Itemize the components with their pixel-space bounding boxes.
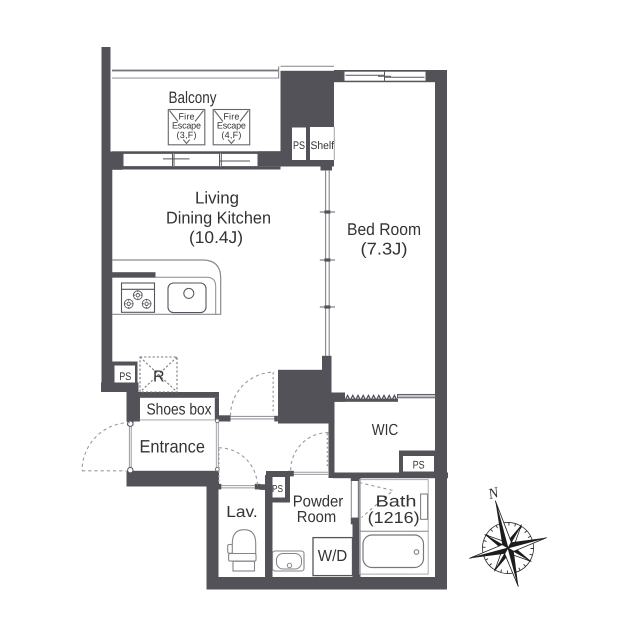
svg-text:Bed Room: Bed Room: [347, 220, 421, 239]
svg-text:(4,F): (4,F): [221, 130, 241, 140]
svg-text:R: R: [153, 369, 165, 386]
svg-text:Lav.: Lav.: [226, 504, 258, 521]
svg-text:Shelf: Shelf: [311, 140, 335, 152]
svg-text:(1216): (1216): [368, 510, 420, 527]
svg-text:(7.3J): (7.3J): [361, 240, 408, 259]
svg-text:Bath: Bath: [376, 494, 417, 511]
svg-text:PS: PS: [293, 140, 305, 152]
svg-text:Dining Kitchen: Dining Kitchen: [166, 209, 271, 228]
svg-text:Living: Living: [195, 189, 239, 208]
svg-text:(10.4J): (10.4J): [189, 228, 243, 247]
svg-text:WIC: WIC: [372, 422, 399, 439]
svg-text:Shoes box: Shoes box: [147, 401, 212, 418]
svg-text:W/D: W/D: [318, 548, 348, 565]
svg-text:Entrance: Entrance: [139, 436, 205, 456]
svg-text:(3,F): (3,F): [177, 130, 197, 140]
svg-text:Room: Room: [297, 509, 337, 526]
svg-text:PS: PS: [272, 484, 283, 495]
svg-text:PS: PS: [119, 371, 131, 383]
svg-text:Balcony: Balcony: [169, 89, 218, 107]
svg-text:Powder: Powder: [293, 493, 344, 510]
svg-text:PS: PS: [413, 460, 425, 472]
